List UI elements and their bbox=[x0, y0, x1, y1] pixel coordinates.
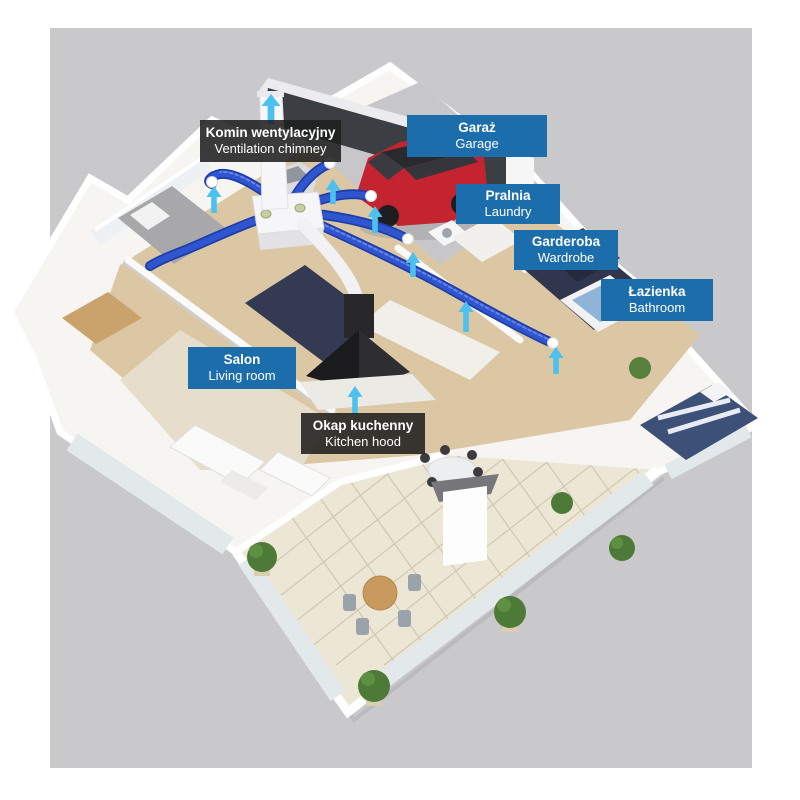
label-garage-pl: Garaż bbox=[458, 119, 496, 136]
indoor-plant bbox=[629, 357, 651, 379]
label-bathroom: Łazienka Bathroom bbox=[601, 279, 713, 321]
label-kitchen-hood: Okap kuchenny Kitchen hood bbox=[301, 413, 425, 454]
floorplan-scene bbox=[0, 0, 800, 800]
label-living-room: Salon Living room bbox=[188, 347, 296, 389]
label-garage: Garaż Garage bbox=[407, 115, 547, 157]
label-kitchen-hood-pl: Okap kuchenny bbox=[313, 417, 414, 434]
label-laundry-en: Laundry bbox=[485, 204, 532, 221]
label-bathroom-en: Bathroom bbox=[629, 300, 685, 317]
label-wardrobe-pl: Garderoba bbox=[532, 233, 600, 250]
label-kitchen-hood-en: Kitchen hood bbox=[325, 434, 401, 451]
label-ventilation-chimney: Komin wentylacyjny Ventilation chimney bbox=[200, 120, 341, 162]
label-wardrobe: Garderoba Wardrobe bbox=[514, 230, 618, 270]
label-garage-en: Garage bbox=[455, 136, 498, 153]
label-ventilation-chimney-en: Ventilation chimney bbox=[214, 141, 326, 158]
patio-pillar bbox=[443, 486, 487, 566]
label-bathroom-pl: Łazienka bbox=[628, 283, 685, 300]
label-living-room-en: Living room bbox=[208, 368, 275, 385]
label-laundry: Pralnia Laundry bbox=[456, 184, 560, 224]
ventilation-diagram: Komin wentylacyjny Ventilation chimney G… bbox=[0, 0, 800, 800]
label-wardrobe-en: Wardrobe bbox=[538, 250, 595, 267]
label-ventilation-chimney-pl: Komin wentylacyjny bbox=[206, 124, 336, 141]
label-living-room-pl: Salon bbox=[224, 351, 261, 368]
label-laundry-pl: Pralnia bbox=[485, 187, 530, 204]
